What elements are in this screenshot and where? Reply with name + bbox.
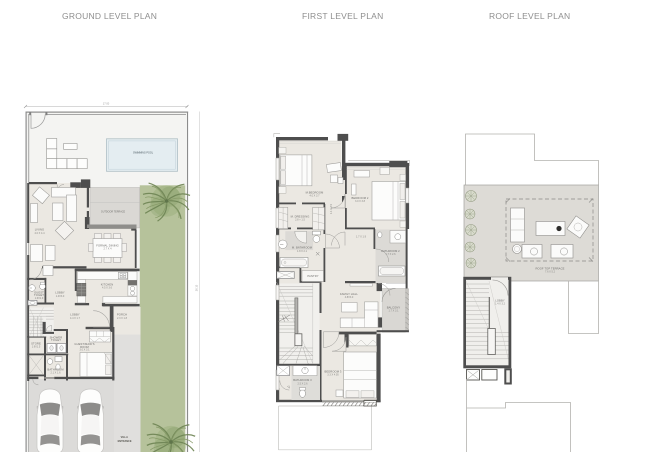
svg-text:ENTRANCE: ENTRANCE [118, 440, 132, 443]
svg-text:1.1 X 3.9: 1.1 X 3.9 [330, 203, 333, 214]
svg-text:4.5 X 3.6: 4.5 X 3.6 [102, 287, 113, 290]
svg-text:3.0 X 3.1: 3.0 X 3.1 [79, 349, 90, 352]
svg-text:4.4 X 1.7: 4.4 X 1.7 [70, 317, 81, 320]
svg-text:M.BEDROOM: M.BEDROOM [306, 190, 324, 194]
svg-text:TOILET: TOILET [51, 338, 61, 342]
svg-text:1.8 X 2.1: 1.8 X 2.1 [297, 250, 308, 253]
svg-text:FIRST LEVEL PLAN: FIRST LEVEL PLAN [302, 11, 383, 21]
svg-text:1.6X1.9: 1.6X1.9 [35, 297, 44, 300]
svg-text:2.7 X 4: 2.7 X 4 [104, 248, 113, 251]
svg-text:2.8 + 1.5: 2.8 + 1.5 [295, 218, 305, 221]
svg-text:2.1 X 1.6: 2.1 X 1.6 [50, 371, 61, 374]
svg-text:1.4 X 3.2: 1.4 X 3.2 [495, 303, 506, 306]
svg-text:26.15: 26.15 [195, 284, 199, 291]
svg-text:ROOF LEVEL PLAN: ROOF LEVEL PLAN [489, 11, 570, 21]
svg-text:3.0 X 3.8: 3.0 X 3.8 [355, 200, 366, 203]
svg-text:7.6 X 5.2: 7.6 X 5.2 [545, 271, 556, 274]
svg-text:1.7 X 1.9: 1.7 X 1.9 [356, 236, 367, 239]
svg-text:1.9X1.5: 1.9X1.5 [32, 345, 41, 348]
svg-text:3.3 X 4.05: 3.3 X 4.05 [327, 374, 339, 377]
svg-text:GROUND LEVEL PLAN: GROUND LEVEL PLAN [62, 11, 157, 21]
svg-text:17.00: 17.00 [103, 102, 110, 106]
svg-text:VILLA: VILLA [121, 436, 128, 439]
svg-text:2.5 X 2.6: 2.5 X 2.6 [297, 382, 308, 385]
svg-text:2.3 X 1.8: 2.3 X 1.8 [117, 317, 128, 320]
svg-text:PANTRY: PANTRY [307, 274, 318, 278]
svg-text:4.0 X 4.4: 4.0 X 4.4 [34, 232, 45, 235]
svg-text:SWIMMING POOL: SWIMMING POOL [133, 152, 154, 155]
svg-text:1.4X3.0: 1.4X3.0 [56, 295, 65, 298]
svg-text:LIVING: LIVING [35, 228, 44, 232]
svg-text:4.0 X 3.7: 4.0 X 3.7 [309, 195, 320, 198]
svg-text:1.7 X 3.1: 1.7 X 3.1 [388, 310, 399, 313]
svg-text:4.8X3.0: 4.8X3.0 [345, 296, 354, 299]
svg-text:OUTDOOR TERRACE: OUTDOOR TERRACE [101, 210, 126, 213]
